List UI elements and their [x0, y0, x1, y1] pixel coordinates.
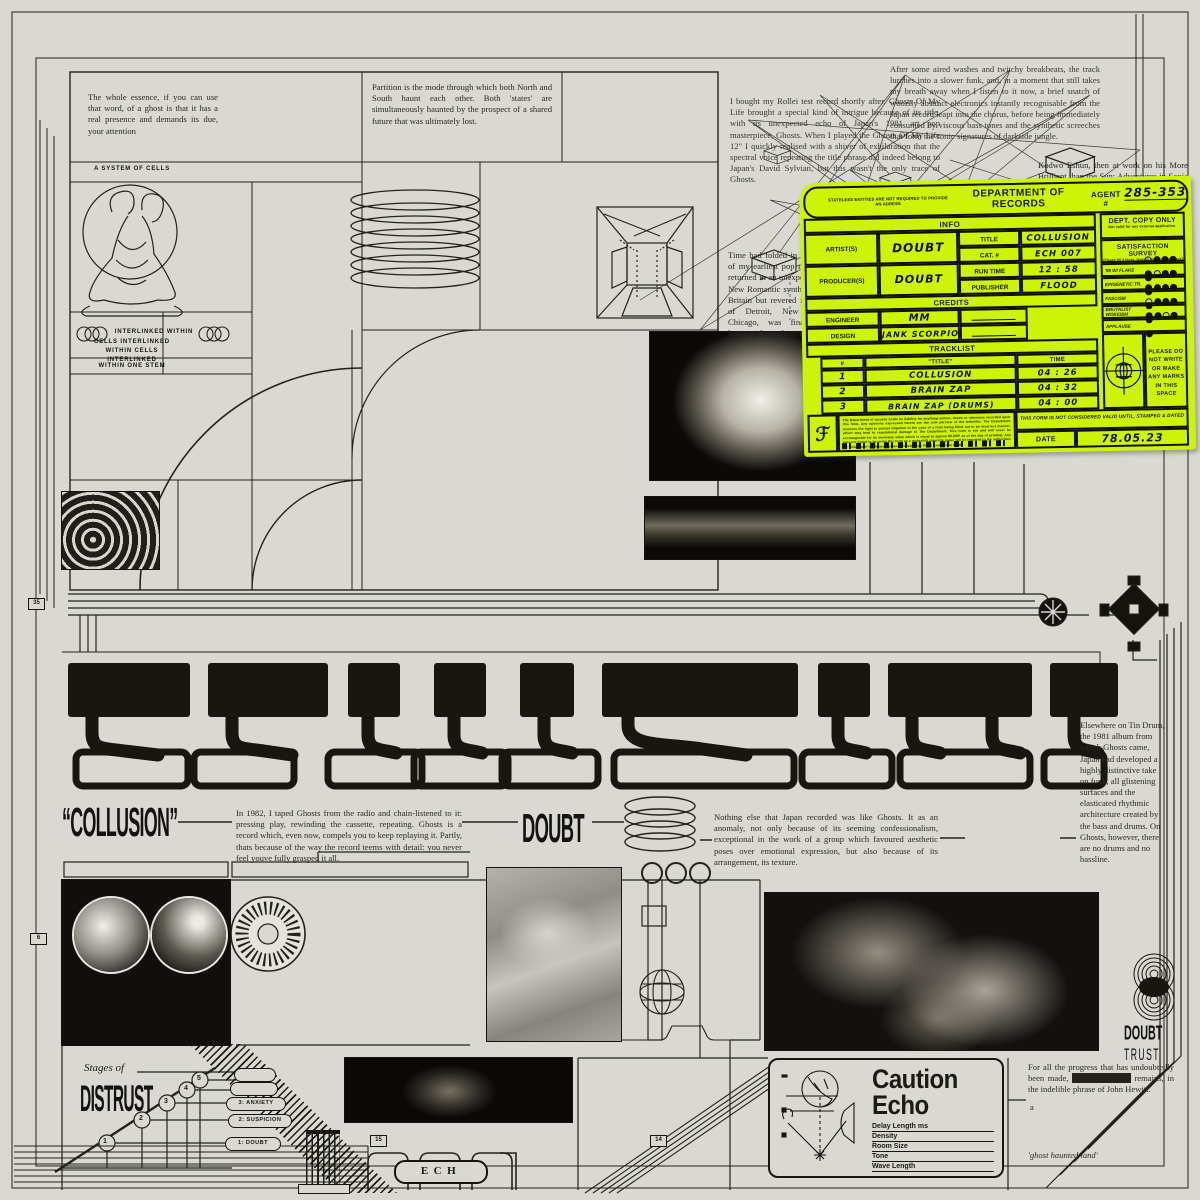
survey-face-icon [1146, 299, 1153, 306]
crowd-photo-strip [645, 497, 855, 559]
swirl-photo [62, 492, 159, 569]
survey-face-icon [1171, 312, 1178, 319]
cat-label-cell: CAT. # [958, 246, 1020, 263]
echo-diagram [774, 1063, 866, 1173]
stage-pill-4[interactable] [230, 1082, 278, 1096]
agent-label: AGENT # [1090, 190, 1121, 209]
progress-paragraph: For all the progress that has undoubtedl… [1028, 1062, 1174, 1096]
taped-ghosts-paragraph: In 1982, I taped Ghosts from the radio a… [236, 808, 462, 864]
node-marker-14: 14 [650, 1135, 667, 1147]
cells-interlinked-label: CELLS INTERLINKED WITHIN CELLS INTERLINK… [92, 338, 172, 365]
survey-face-icon [1171, 298, 1178, 305]
stage-pill-anxiety[interactable]: 3: ANXIETY [226, 1097, 286, 1111]
echo-params-list: Delay Length ms Density Room Size Tone W… [872, 1122, 994, 1172]
echo-param[interactable]: Density [872, 1132, 994, 1142]
engineer-blank-cell[interactable] [959, 308, 1027, 325]
stamp-target-cell [1102, 332, 1145, 409]
echo-param[interactable]: Delay Length ms [872, 1122, 994, 1132]
chip-icon [1100, 576, 1168, 651]
node-marker-6: 6 [30, 933, 47, 945]
tracklist-col-num: # [820, 357, 864, 370]
nothing-else-paragraph: Nothing else that Japan recorded was lik… [714, 812, 938, 868]
survey-row-label: FASCISM [1103, 295, 1145, 301]
echo-param[interactable]: Room Size [872, 1142, 994, 1152]
doubt-trust-top-label: DOUBT [1124, 1022, 1162, 1045]
date-label-cell: DATE [1016, 430, 1076, 449]
track-2-time: 04 : 32 [1017, 379, 1099, 396]
dept-copy-sub: Not valid for any external application. [1102, 224, 1183, 230]
survey-face-icon [1162, 284, 1169, 291]
runtime-label-cell: RUN TIME [959, 262, 1021, 279]
stages-of-label: Stages of [84, 1062, 124, 1074]
date-value-entry[interactable]: 78.05.23 [1076, 428, 1189, 448]
publisher-value-entry[interactable]: FLOOD [1021, 276, 1097, 293]
stage-number-3: 3 [164, 1098, 168, 1105]
node-marker-15: 15 [370, 1135, 387, 1147]
stage-number-5: 5 [197, 1075, 201, 1082]
stage-pill-suspicion[interactable]: 2: SUSPICION [228, 1114, 292, 1128]
dept-copy-cell: DEPT. COPY ONLY Not valid for any extern… [1100, 212, 1185, 240]
moon-icon [802, 1071, 838, 1107]
survey-face-icon [1161, 256, 1168, 263]
doubt-trust-rings-icon [1122, 952, 1186, 1022]
producer-value-entry[interactable]: DOUBT [879, 263, 960, 297]
engineer-label-cell: ENGINEER [805, 310, 879, 327]
stamp-target-icon [1104, 334, 1143, 407]
interlinked-within-label: INTERLINKED WITHIN [110, 328, 198, 337]
survey-row-label: EPIGENETIC TR. [1103, 281, 1145, 287]
column-base [298, 1184, 350, 1194]
form-title: DEPARTMENT OF RECORDS [948, 186, 1088, 211]
gray-wave-photo [487, 868, 621, 1041]
stateless-small-print: STATELESS ENTITIES ARE NOT REQUIRED TO P… [805, 195, 948, 209]
survey-face-icon [1145, 271, 1152, 278]
survey-row-label: '99 W/ FLAKE [1103, 267, 1145, 273]
echo-param[interactable]: Wave Length [872, 1162, 994, 1172]
within-one-stem-label: WITHIN ONE STEM [92, 362, 172, 371]
survey-face-icon [1153, 256, 1160, 263]
survey-face-icon [1170, 284, 1177, 291]
album-artwork: The whole essence, if you can use that w… [0, 0, 1200, 1200]
survey-face-icon [1163, 312, 1170, 319]
stage-pill-5[interactable] [234, 1068, 276, 1082]
stage-pill-doubt[interactable]: 1: DOUBT [225, 1137, 281, 1151]
fine-print-cell: The Department of records holds no liabi… [837, 411, 1016, 452]
agent-number-entry[interactable]: 285-353 [1124, 185, 1186, 201]
survey-face-icon [1154, 298, 1161, 305]
stage-number-4: 4 [184, 1085, 188, 1092]
survey-row-label: BRUTALIST WOKEISM [1103, 306, 1145, 317]
survey-face-icon [1145, 285, 1152, 292]
design-label-cell: DESIGN [806, 326, 880, 343]
system-of-cells-label: A SYSTEM OF CELLS [92, 165, 172, 174]
publisher-label-cell: PUBLISHER [959, 278, 1021, 295]
partition-paragraph: Partition is the mode through which both… [372, 82, 552, 127]
survey-row-label: APPLAUSE [1104, 323, 1146, 329]
collusion-quoted-logo: “COLLUSION” [62, 800, 178, 847]
caution-echo-panel: Caution Echo Delay Length ms Density Roo… [768, 1058, 1004, 1178]
echo-param[interactable]: Tone [872, 1152, 994, 1162]
ghost-haunted-quote: 'ghost haunted land' [1028, 1150, 1148, 1161]
monogram-cell: ℱ [807, 414, 838, 453]
survey-face-icon [1162, 270, 1169, 277]
artist-label-cell: ARTIST(S) [804, 232, 879, 265]
kiss-photo [765, 893, 1098, 1050]
ech-pill: ECH [394, 1160, 488, 1184]
department-of-records-form: STATELESS ENTITIES ARE NOT REQUIRED TO P… [799, 175, 1196, 456]
stage-number-2: 2 [139, 1115, 143, 1122]
survey-face-icon [1154, 312, 1161, 319]
halftone-circle-2 [152, 898, 226, 972]
rollei-paragraph: I bought my Rollei test record shortly a… [730, 96, 940, 185]
runtime-value-entry[interactable]: 12 : 58 [1021, 260, 1097, 277]
title-value-entry[interactable]: COLLUSION [1020, 228, 1096, 245]
track-1-num: 1 [821, 369, 865, 385]
sunburst-icon [1039, 598, 1067, 626]
redacted-text: Northern Ireland [1072, 1073, 1131, 1083]
cat-value-entry[interactable]: ECH 007 [1020, 244, 1096, 261]
no-marks-cell: PLEASE DO NOT WRITE OR MAKE ANY MARKS IN… [1144, 332, 1188, 409]
halftone-circle-1 [74, 898, 148, 972]
track-3-time: 04 : 00 [1017, 394, 1099, 411]
engineer-value-entry[interactable]: MM [879, 309, 959, 327]
progress-a: a [1030, 1102, 1050, 1113]
producer-label-cell: PRODUCER(S) [805, 264, 880, 297]
collusion-logotype [62, 655, 1122, 805]
dial-icon [231, 897, 305, 971]
track-2-num: 2 [821, 384, 865, 400]
design-value-entry[interactable]: JANK SCORPIO [880, 325, 960, 343]
survey-face-icon [1154, 284, 1161, 291]
survey-face-icon [1153, 270, 1160, 277]
node-marker-35: 35 [28, 598, 45, 610]
caution-echo-title: Caution Echo [872, 1068, 958, 1119]
survey-face-icon [1170, 270, 1177, 277]
artist-value-entry[interactable]: DOUBT [878, 231, 959, 265]
embracing-figures-drawing [82, 185, 182, 316]
essence-paragraph: The whole essence, if you can use that w… [88, 92, 218, 137]
doubt-trust-bottom-label: TRUST [1124, 1045, 1162, 1064]
track-1-time: 04 : 26 [1017, 364, 1099, 381]
doubt-logo-mid: DOUBT [522, 806, 584, 853]
stage-number-1: 1 [103, 1138, 107, 1145]
survey-face-icon [1146, 312, 1153, 319]
tin-drum-paragraph: Elsewhere on Tin Drum, the 1981 album fr… [1080, 720, 1166, 865]
design-blank-cell[interactable] [960, 324, 1028, 341]
doubt-trust-wordmark: DOUBT TRUST [1124, 1022, 1162, 1064]
column-hatch [306, 1130, 340, 1192]
face-photo-strip [345, 1058, 572, 1122]
survey-face-icon [1145, 257, 1152, 264]
survey-face-icon [1170, 256, 1177, 263]
survey-face-icon [1162, 298, 1169, 305]
track-3-num: 3 [821, 399, 865, 415]
title-label-cell: TITLE [958, 230, 1020, 247]
